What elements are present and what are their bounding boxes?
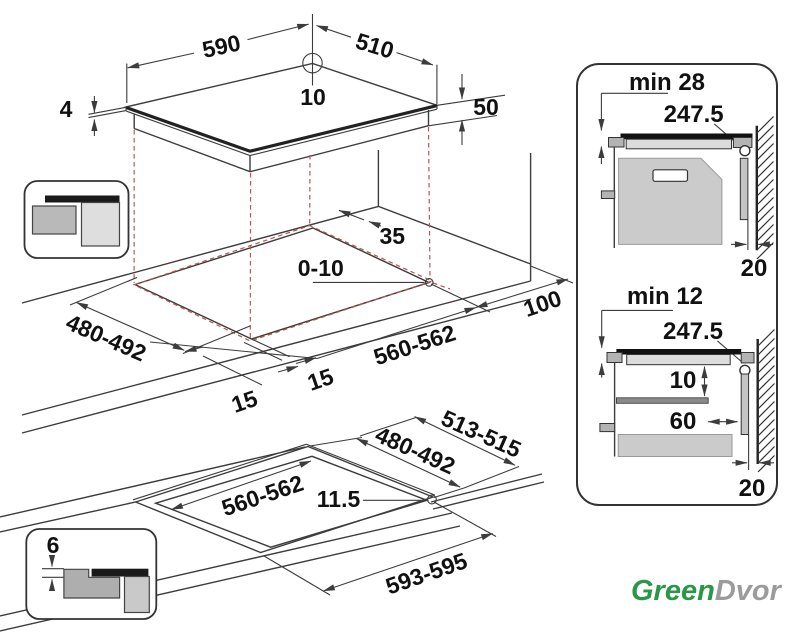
svg-text:60: 60 — [670, 408, 697, 435]
svg-text:20: 20 — [741, 255, 768, 282]
svg-text:50: 50 — [473, 94, 499, 120]
svg-text:min 28: min 28 — [629, 69, 705, 96]
svg-text:4: 4 — [60, 96, 73, 122]
svg-text:247.5: 247.5 — [663, 318, 723, 345]
svg-text:11.5: 11.5 — [317, 486, 361, 512]
svg-text:20: 20 — [739, 475, 766, 502]
svg-text:35: 35 — [380, 223, 406, 249]
svg-text:6: 6 — [47, 532, 60, 558]
svg-text:10: 10 — [670, 367, 697, 394]
svg-text:GreenDvor: GreenDvor — [631, 575, 783, 607]
svg-text:min 12: min 12 — [627, 283, 703, 310]
svg-text:0-10: 0-10 — [298, 255, 344, 281]
svg-text:10: 10 — [300, 84, 326, 110]
